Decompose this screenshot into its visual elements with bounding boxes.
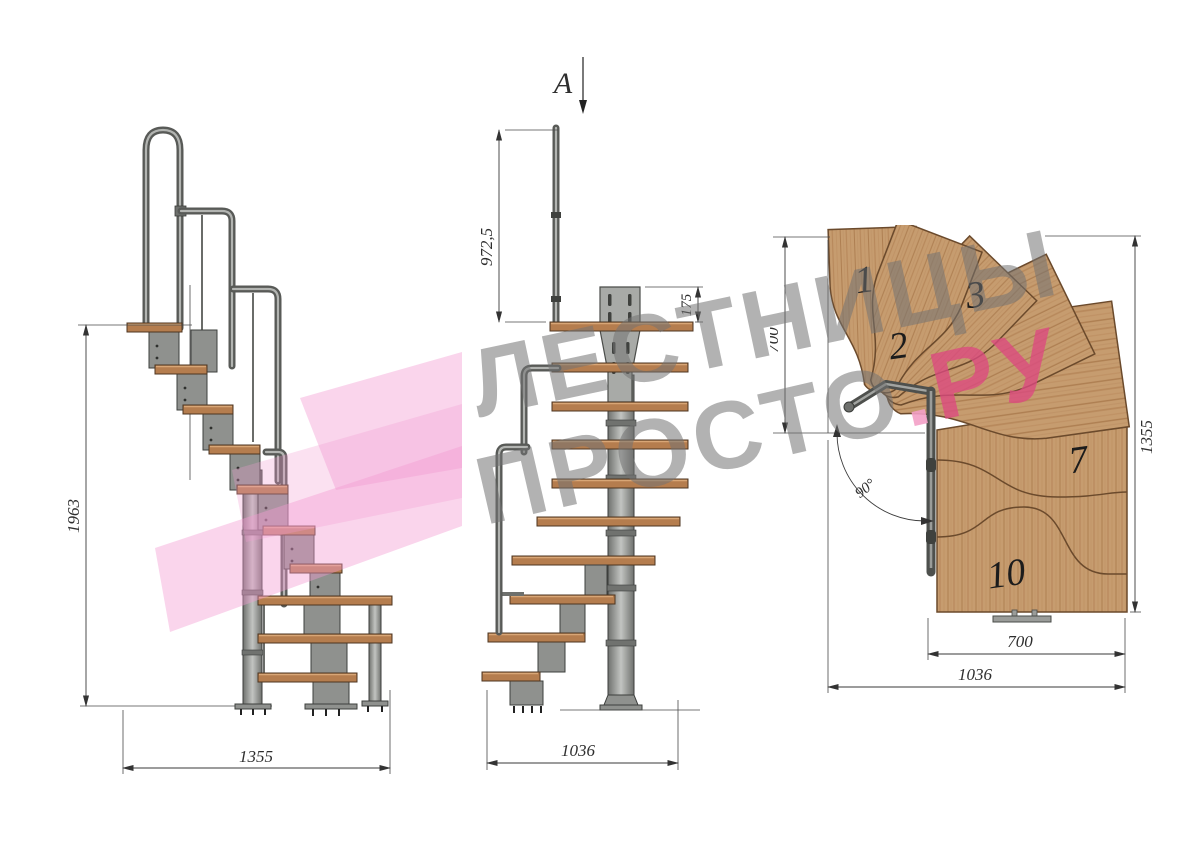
front-handrails: [499, 368, 558, 632]
dim-label-700-bottom: 700: [1007, 632, 1033, 651]
dim-front-bracket: 175: [645, 287, 703, 322]
front-view: A: [450, 50, 750, 790]
dim-label-972-5: 972,5: [477, 228, 496, 266]
dim-front-rail: 972,5: [477, 130, 558, 322]
plan-straight-flight: [937, 418, 1127, 612]
dim-label-175: 175: [679, 293, 695, 316]
dim-plan-tread-width: 700: [928, 618, 1125, 660]
section-label: A: [552, 67, 573, 100]
plan-view: 1 2 3 7 10 700 90° 1355: [770, 225, 1180, 705]
dim-label-90deg: 90°: [852, 476, 878, 502]
side-lower-flight: [258, 596, 392, 716]
dim-label-1036-front: 1036: [561, 741, 596, 760]
staircase-drawing: 1963 1355 A: [0, 0, 1200, 849]
dim-label-1355-plan: 1355: [1137, 420, 1156, 454]
dim-plan-angle: 90°: [833, 424, 934, 525]
dim-label-1036-plan: 1036: [958, 665, 993, 684]
side-elevation-view: 1963 1355: [60, 105, 420, 805]
front-treads: [512, 322, 693, 565]
section-arrow: A: [552, 57, 587, 114]
dim-label-700-left: 700: [770, 327, 782, 353]
plan-fan-treads: [828, 225, 1129, 459]
tread-number-10: 10: [985, 551, 1028, 598]
dim-label-1355-side: 1355: [239, 747, 273, 766]
dim-side-height: 1963: [64, 325, 192, 706]
front-center-pole: [560, 375, 700, 710]
front-rail-post: [551, 128, 561, 322]
dim-label-1963: 1963: [64, 499, 83, 533]
